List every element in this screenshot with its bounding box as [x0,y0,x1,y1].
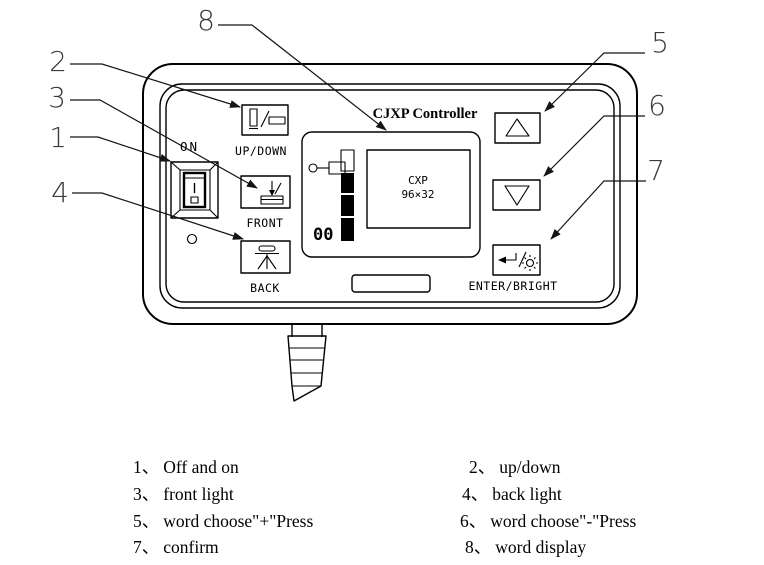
legend-item-7: 7、confirm [133,536,219,558]
callout-numbers: 1 2 3 4 5 6 7 8 [48,4,669,209]
legend-item-1-number: 1、 [133,456,159,478]
legend-item-2: 2、up/down [469,456,561,478]
callout-5-line [545,53,645,111]
callout-1-number: 1 [49,121,67,154]
callout-5-number: 5 [651,26,669,59]
legend-item-3: 3、front light [133,483,234,505]
legend-item-8-number: 8、 [465,536,491,558]
counter-value: 00 [313,225,333,245]
power-switch: ON [171,139,218,218]
up-arrow-icon [506,119,529,136]
battery-icon [341,150,354,241]
up-button-face [495,113,540,143]
legend-item-4: 4、back light [462,483,562,505]
callout-8-number: 8 [197,4,215,37]
updown-button: UP/DOWN [235,105,288,158]
callout-4-number: 4 [51,176,69,209]
legend-item-1: 1、Off and on [133,456,239,478]
front-button-label: FRONT [246,216,283,230]
down-button [493,180,540,210]
front-light-icon [261,181,283,204]
display-panel: 00 CXP 96×32 [302,132,480,257]
down-button-face [493,180,540,210]
manual-page: ON UP/DOWN FRONT [0,0,764,565]
legend-item-8-text: word display [495,537,586,557]
cable-strain-relief [288,336,326,401]
enter-bright-icon [498,252,538,271]
legend-item-5-number: 5、 [133,510,159,532]
callout-7-number: 7 [647,154,665,187]
callout-3-line [70,100,257,188]
callout-1-line [70,137,170,161]
down-arrow-icon [505,186,529,205]
callout-6-number: 6 [648,89,666,122]
device-outline [143,64,637,324]
callout-7-line [551,181,646,239]
updown-button-label: UP/DOWN [235,144,287,158]
legend-item-6-number: 6、 [460,510,486,532]
cable [288,324,326,401]
indicator-led [188,235,197,244]
legend-item-7-text: confirm [163,537,218,557]
cable-neck [292,324,322,337]
legend-item-4-number: 4、 [462,483,488,505]
screen-model-line1: CXP [408,174,428,187]
antenna-icon [309,162,345,174]
legend-item-2-text: up/down [499,457,560,477]
legend-item-4-text: back light [492,484,562,504]
enter-button: ENTER/BRIGHT [468,245,557,293]
power-off-mark [191,197,198,203]
back-light-icon [255,246,279,269]
legend-item-6: 6、word choose"-"Press [460,510,636,532]
legend-item-1-text: Off and on [163,457,239,477]
legend-item-8: 8、word display [465,536,586,558]
device-body [143,64,637,324]
back-button: BACK [241,241,290,295]
screen-model-line2: 96×32 [401,188,434,201]
legend-item-5: 5、word choose"+"Press [133,510,313,532]
legend-item-5-text: word choose"+"Press [163,511,313,531]
front-button: FRONT [241,176,290,230]
legend-item-3-number: 3、 [133,483,159,505]
updown-icon [249,109,285,129]
label-slot [352,275,430,292]
legend-item-2-number: 2、 [469,456,495,478]
controller-diagram: ON UP/DOWN FRONT [0,0,764,452]
callout-6-line [544,116,645,176]
legend-item-3-text: front light [163,484,233,504]
back-button-label: BACK [250,281,280,295]
callout-3-number: 3 [48,81,66,114]
device-title: CJXP Controller [373,106,478,122]
callout-8-line [218,25,386,130]
up-button [495,113,540,143]
legend-item-7-number: 7、 [133,536,159,558]
legend-item-6-text: word choose"-"Press [490,511,636,531]
callout-2-number: 2 [49,45,67,78]
enter-button-label: ENTER/BRIGHT [468,279,557,293]
